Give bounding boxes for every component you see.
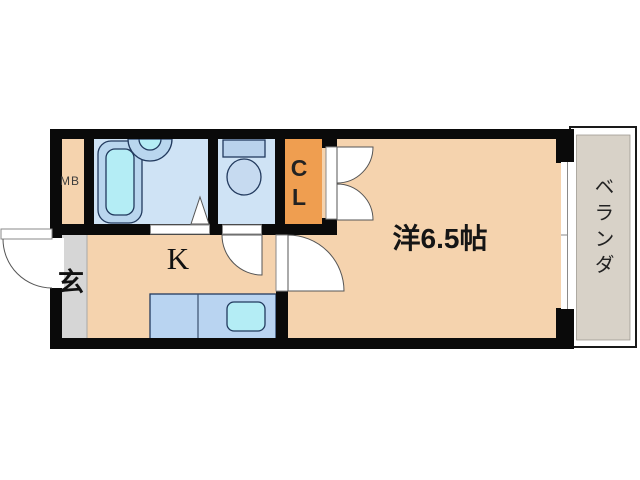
window-jamb-top — [556, 139, 574, 163]
toilet-tank — [223, 140, 265, 157]
wall-top — [50, 129, 574, 139]
floorplan-drawing — [0, 0, 640, 480]
closet-jamb-bottom — [322, 218, 337, 235]
entrance-door-leaf — [1, 229, 52, 239]
wall-mb-bath — [84, 139, 94, 224]
toilet-bowl — [227, 159, 261, 195]
closet-label-char-l: L — [286, 183, 312, 212]
bathroom-door-threshold — [151, 225, 210, 234]
wall-bottom — [50, 338, 574, 349]
wall-bath-toilet — [208, 139, 218, 224]
closet-label: C L — [286, 154, 312, 212]
toilet-door-threshold — [223, 225, 262, 234]
kitchen-sink — [227, 302, 265, 331]
toilet-icon — [223, 140, 265, 195]
entrance-door-swing — [3, 239, 52, 288]
wall-kitchen-mainroom — [276, 291, 288, 349]
meter-box-label: MB — [56, 175, 84, 187]
wall-toilet-closet — [275, 139, 285, 224]
closet-door-leaf — [326, 147, 337, 219]
entrance-label: 玄 — [55, 269, 87, 295]
main-room-label: 洋6.5帖 — [360, 225, 520, 253]
closet-label-char-c: C — [286, 154, 312, 183]
mainroom-door-leaf — [276, 235, 288, 291]
window-jamb-bottom — [556, 308, 574, 338]
balcony-label: ベランダ — [592, 176, 612, 326]
bathtub-inner — [106, 149, 134, 215]
kitchen-counter-icon — [150, 294, 276, 339]
kitchen-label: K — [158, 243, 198, 274]
floorplan-page: MB C L K 玄 洋6.5帖 ベランダ — [0, 0, 640, 480]
